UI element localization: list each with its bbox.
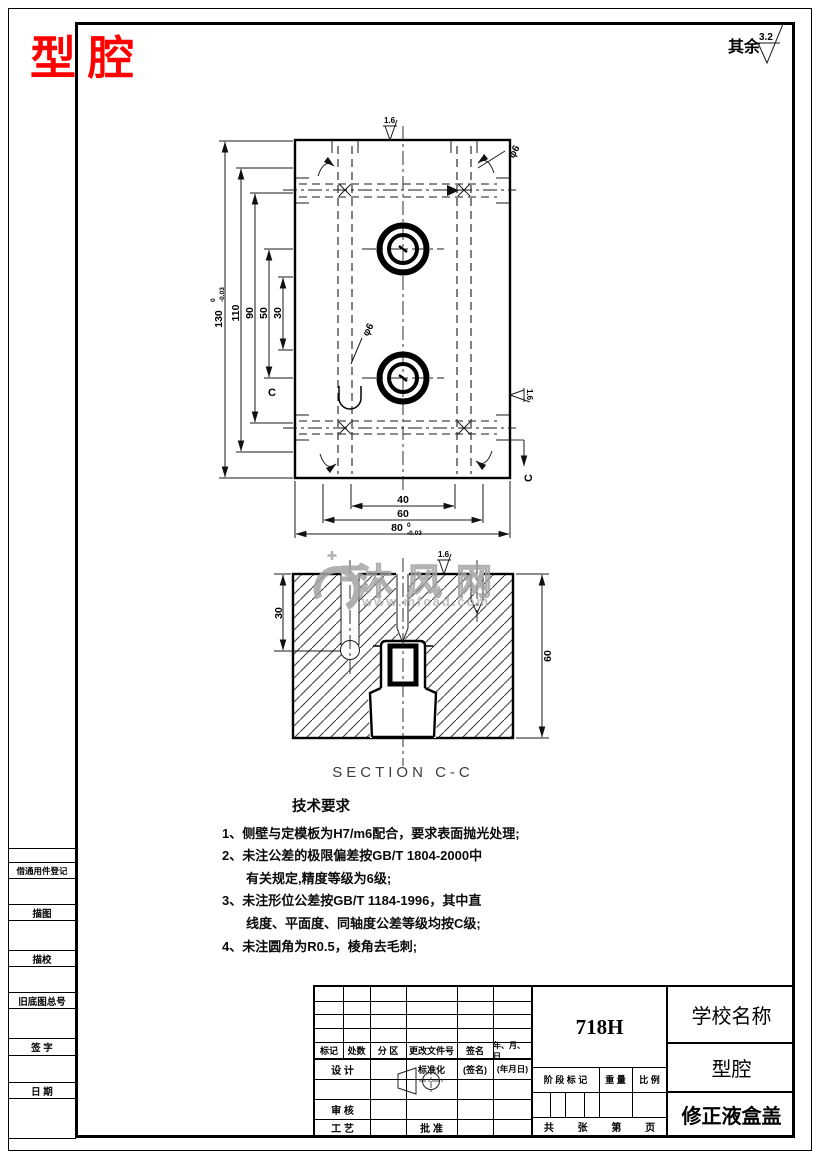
sheet-count-row: 共 张 第 页 xyxy=(532,1117,667,1136)
rev-header-mark: 标记 xyxy=(315,1042,343,1059)
svg-text:1.6: 1.6 xyxy=(438,550,450,559)
sheets-unit-label: 张 xyxy=(578,1119,588,1134)
scale-label: 比 例 xyxy=(632,1067,667,1092)
roughness-side-icon: 1.6 xyxy=(510,388,534,402)
svg-text:80: 80 xyxy=(391,522,403,534)
strip-label-trace-check: 描校 xyxy=(8,950,76,967)
strip-label-date: 日 期 xyxy=(8,1082,76,1099)
top-view: 1.6 1.6 φ6 φ6 C C 130 0 -0.03 xyxy=(210,116,535,538)
strip-label-tracing: 描图 xyxy=(8,904,76,921)
svg-text:1.6: 1.6 xyxy=(525,389,534,401)
technical-requirements: 技术要求 1、侧壁与定模板为H7/m6配合，要求表面抛光处理; 2、未注公差的极… xyxy=(222,796,542,958)
svg-text:50: 50 xyxy=(258,307,270,319)
svg-text:1.6: 1.6 xyxy=(384,116,396,125)
part-name: 型腔 xyxy=(668,1044,795,1091)
channel-end xyxy=(339,386,361,409)
tech-req-line: 4、未注圆角为R0.5，棱角去毛刺; xyxy=(222,936,542,959)
rev-header-sign: 签名 xyxy=(457,1042,493,1059)
phi6-side-label: φ6 xyxy=(361,321,377,338)
strip-label-signature: 签 字 xyxy=(8,1038,76,1056)
tech-req-line: 1、侧壁与定模板为H7/m6配合，要求表面抛光处理; xyxy=(222,823,542,846)
surplus-roughness-symbol: 其余 3.2 xyxy=(728,24,783,63)
rev-header-count: 处数 xyxy=(343,1042,370,1059)
role-process: 工 艺 xyxy=(315,1119,370,1136)
watermark-site: www.mfcad.com xyxy=(361,594,490,609)
section-c-left: C xyxy=(268,387,276,399)
rev-header-zone: 分 区 xyxy=(370,1042,406,1059)
svg-text:3.2: 3.2 xyxy=(759,32,773,43)
title-block: 标记 处数 分 区 更改文件号 签名 年、月、日 设 计 标准化 (签名) (年… xyxy=(313,985,795,1138)
projection-symbol-icon xyxy=(395,1063,447,1101)
svg-text:90: 90 xyxy=(244,307,256,319)
svg-text:30: 30 xyxy=(273,607,285,619)
hint-date: (年月日) xyxy=(493,1059,532,1079)
weight-label: 重 量 xyxy=(599,1067,632,1092)
svg-text:60: 60 xyxy=(542,650,554,662)
section-c-bottom: C xyxy=(523,474,535,482)
tech-req-heading: 技术要求 xyxy=(292,796,542,819)
svg-text:其余: 其余 xyxy=(728,37,761,56)
page-no-label: 第 xyxy=(611,1119,621,1134)
drawing-sheet: { "sheet": { "title": "型腔", "surplus_lab… xyxy=(0,0,820,1159)
svg-text:110: 110 xyxy=(230,304,242,321)
school-name: 学校名称 xyxy=(668,987,795,1042)
svg-text:-0.03: -0.03 xyxy=(219,287,226,302)
tech-req-line: 线度、平面度、同轴度公差等级均按C级; xyxy=(222,913,542,936)
roughness-top-icon: 1.6 xyxy=(383,116,397,140)
svg-text:0: 0 xyxy=(407,522,411,529)
top-view-dimensions-left: 130 0 -0.03 110 90 50 30 xyxy=(210,141,293,478)
role-review: 审 核 xyxy=(315,1099,370,1119)
svg-text:0: 0 xyxy=(210,298,217,302)
product-name: 修正液盒盖 xyxy=(668,1093,795,1136)
strip-label-old-drawing-no: 旧底图总号 xyxy=(8,992,76,1009)
page-unit-label: 页 xyxy=(645,1119,655,1134)
svg-text:30: 30 xyxy=(272,307,284,319)
top-view-dimensions-bottom: 40 60 80 0 -0.03 xyxy=(295,481,510,538)
strip-label-borrowed-parts: 借通用件登记 xyxy=(8,862,76,879)
hint-signature: (签名) xyxy=(457,1059,493,1079)
tech-req-line: 2、未注公差的极限偏差按GB/T 1804-2000中 xyxy=(222,845,542,868)
tech-req-line: 有关规定,精度等级为6级; xyxy=(222,868,542,891)
tech-req-line: 3、未注形位公差按GB/T 1184-1996，其中直 xyxy=(222,890,542,913)
stage-mark-label: 阶 段 标 记 xyxy=(532,1067,599,1092)
sheets-total-label: 共 xyxy=(544,1119,554,1134)
material-grade: 718H xyxy=(532,987,667,1067)
svg-text:-0.03: -0.03 xyxy=(407,530,422,537)
rev-header-doc-no: 更改文件号 xyxy=(406,1042,457,1059)
svg-text:40: 40 xyxy=(397,494,409,506)
svg-text:60: 60 xyxy=(397,508,409,520)
svg-text:130: 130 xyxy=(213,310,225,328)
rev-header-date: 年、月、日 xyxy=(493,1042,532,1059)
top-view-plate xyxy=(295,140,510,478)
role-approve: 批 准 xyxy=(406,1119,457,1136)
section-caption: SECTION C-C xyxy=(332,764,474,781)
role-design: 设 计 xyxy=(315,1059,370,1079)
